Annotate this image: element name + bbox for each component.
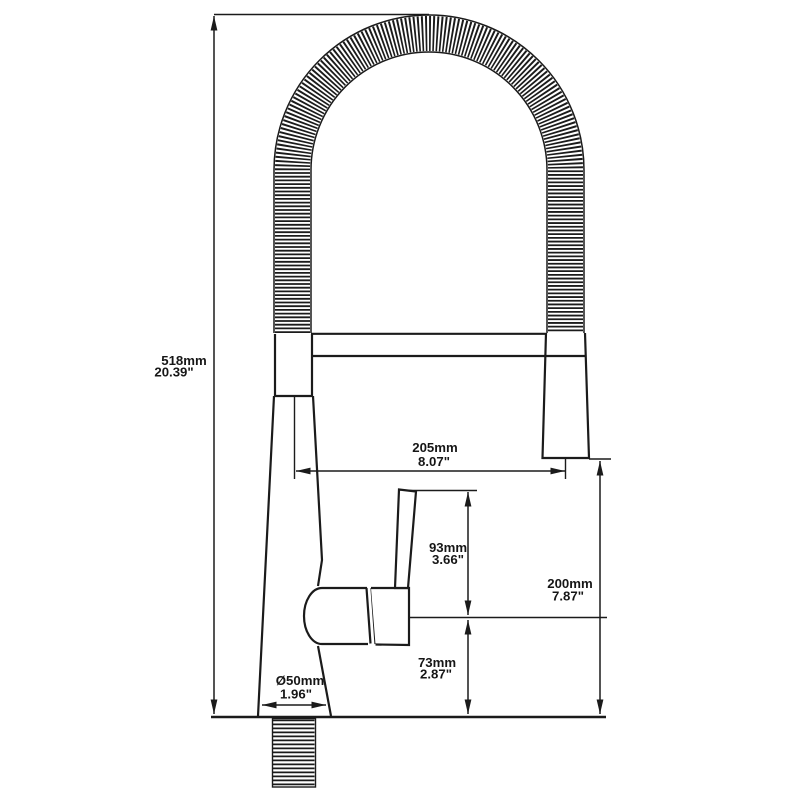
spray-head-holder	[543, 333, 590, 458]
technical-drawing-canvas: 518mm 20.39" 205mm 8.07" 93mm 3.66" 200m…	[0, 0, 800, 800]
handle-lever	[395, 490, 416, 589]
faucet-dimension-diagram: 518mm 20.39" 205mm 8.07" 93mm 3.66" 200m…	[0, 0, 800, 800]
valve-cartridge-cap	[304, 588, 368, 644]
spring-coil-spout	[293, 34, 566, 334]
valve-body-block	[371, 588, 409, 645]
body-height-inch-label: 2.87"	[420, 667, 452, 682]
base-diameter-inch-label: 1.96"	[280, 687, 312, 702]
spout-reach-mm-label: 205mm	[412, 440, 457, 455]
spout-reach-inch-label: 8.07"	[418, 454, 450, 469]
outlet-height-inch-label: 7.87"	[552, 589, 584, 604]
handle-height-inch-label: 3.66"	[432, 552, 464, 567]
overall-height-inch-label: 20.39"	[154, 365, 193, 380]
